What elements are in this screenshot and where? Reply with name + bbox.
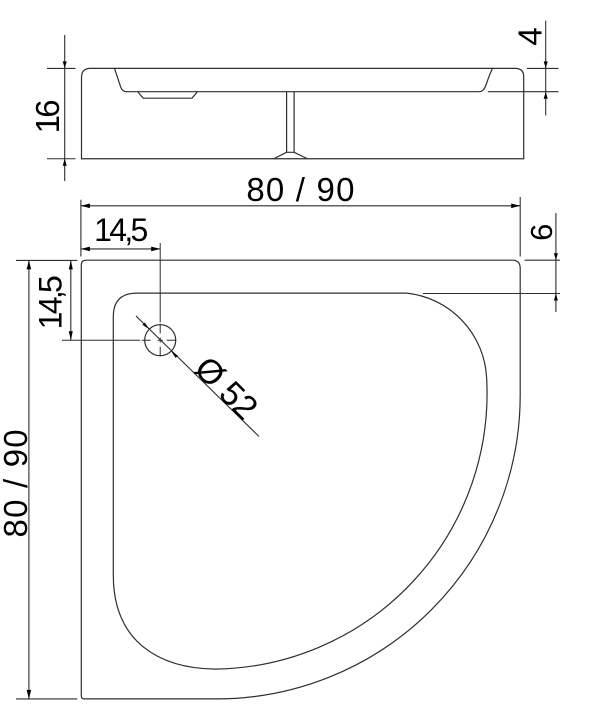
svg-text:80 / 90: 80 / 90: [246, 171, 355, 208]
svg-text:14,5: 14,5: [33, 276, 69, 329]
svg-text:80 / 90: 80 / 90: [0, 428, 34, 537]
svg-text:16: 16: [29, 101, 66, 134]
svg-text:6: 6: [524, 224, 559, 241]
svg-text:4: 4: [512, 27, 549, 45]
svg-text:Ø 52: Ø 52: [187, 349, 265, 427]
svg-text:14,5: 14,5: [94, 212, 147, 248]
